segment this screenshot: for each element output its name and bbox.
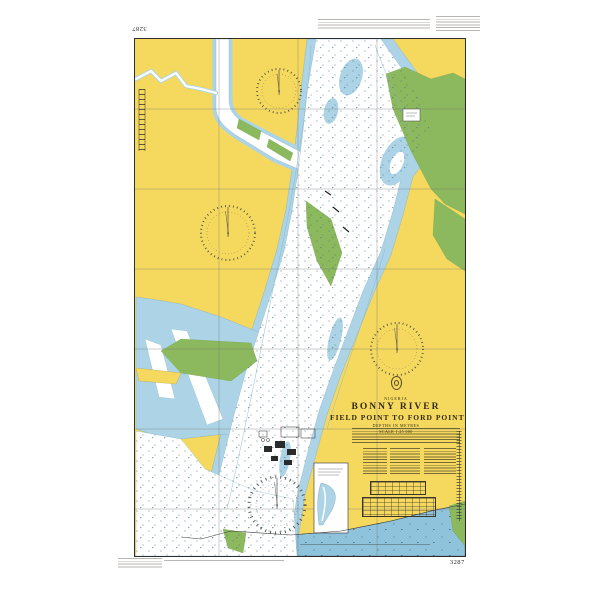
title-block: NIGERIA BONNY RIVER FIELD POINT TO FORD … [330, 376, 462, 434]
top-fine-print-right [436, 16, 480, 32]
chart-scan-page: 3287 [0, 0, 600, 600]
publication-note [118, 558, 162, 569]
inset-panel [314, 463, 348, 533]
chart-subtitle: FIELD POINT TO FORD POINT [330, 413, 462, 422]
chart-map-graphic [135, 39, 465, 556]
chart-number-bottom-right: 3287 [450, 559, 465, 566]
notes-column-2 [390, 448, 420, 476]
notes-column-3 [424, 448, 456, 474]
chart-number-top-left: 3287 [132, 25, 147, 32]
chart-sheet [134, 38, 466, 557]
notes-column-1 [363, 448, 387, 474]
copyright-line [164, 560, 284, 563]
notes-paragraph [352, 428, 460, 444]
country-label: NIGERIA [330, 396, 462, 401]
chart-title: BONNY RIVER [330, 402, 462, 412]
tidal-table-1 [370, 481, 426, 495]
sea-caption-line [300, 544, 430, 546]
top-fine-print-left [318, 19, 430, 30]
note-label-box [403, 109, 420, 121]
admiralty-crest-icon [391, 376, 402, 390]
tidal-table-2 [362, 497, 436, 517]
